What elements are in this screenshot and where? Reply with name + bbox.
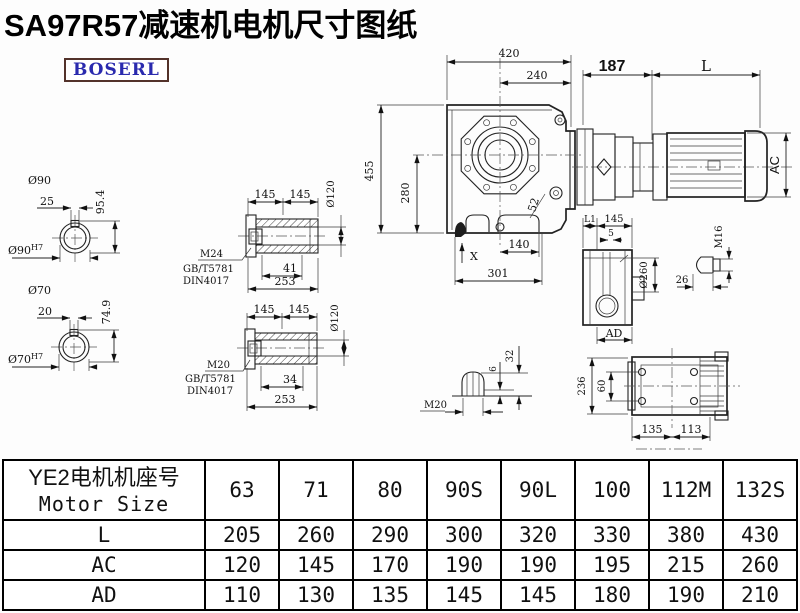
- table-header-row: YE2电机机座号 Motor Size 63 71 80 90S 90L 100…: [3, 460, 797, 520]
- dim-key20: 20: [38, 305, 52, 318]
- dim-dia120-top: Ø120: [326, 180, 337, 207]
- dim-60: 60: [597, 380, 608, 393]
- table-cell: 130: [279, 580, 353, 610]
- table-cell: 210: [723, 580, 797, 610]
- table-cell: 170: [353, 550, 427, 580]
- dim-dia260: Ø260: [639, 261, 650, 288]
- label-x-mark: X: [470, 250, 478, 263]
- dim-135: 135: [642, 423, 663, 436]
- dim-5: 5: [608, 229, 614, 239]
- size-col-header: 100: [575, 460, 649, 520]
- dim-41: 41: [283, 262, 297, 275]
- table-cell: 300: [427, 520, 501, 550]
- table-cell: 135: [353, 580, 427, 610]
- table-cell: 190: [649, 580, 723, 610]
- dim-M16: M16: [714, 226, 725, 249]
- table-cell: 260: [723, 550, 797, 580]
- size-col-header: 132S: [723, 460, 797, 520]
- size-col-header: 80: [353, 460, 427, 520]
- dim-145a: 145: [255, 188, 276, 201]
- gearbox-side-view: L1 145 5 Ø260 AD M16: [583, 214, 733, 344]
- table-cell: 195: [575, 550, 649, 580]
- motor-size-header-cell: YE2电机机座号 Motor Size: [3, 460, 205, 520]
- hollow-shaft-section-m20: 145 145 Ø120 M20 GB/T5781 DIN4017 34 253: [185, 303, 349, 411]
- label-din4017-bottom: DIN4017: [187, 386, 233, 397]
- dim-52: 52: [525, 196, 542, 213]
- dim-L1: L1: [584, 215, 596, 225]
- dim-AC: AC: [767, 156, 782, 174]
- hollow-shaft-section-m24: 145 145 Ø120 M24 GB/T5781 DIN4017 41 253: [183, 180, 346, 293]
- dim-dia90-label: Ø90: [28, 174, 51, 187]
- size-col-header: 63: [205, 460, 279, 520]
- dim-236: 236: [577, 376, 588, 395]
- table-cell: 260: [279, 520, 353, 550]
- dim-dia120-bottom: Ø120: [330, 304, 341, 331]
- label-gbt5781-bottom: GB/T5781: [185, 374, 236, 385]
- table-cell: 330: [575, 520, 649, 550]
- table-row-AC: AC 120 145 170 190 190 195 215 260: [3, 550, 797, 580]
- row-label: AD: [3, 580, 205, 610]
- table-cell: 320: [501, 520, 575, 550]
- table-row-L: L 205 260 290 300 320 330 380 430: [3, 520, 797, 550]
- table-cell: 380: [649, 520, 723, 550]
- row-label: AC: [3, 550, 205, 580]
- table-cell: 145: [427, 580, 501, 610]
- dim-dia70-label: Ø70: [28, 284, 51, 297]
- gearbox-front-view: 420 240 455 280 52 X 140 301: [363, 47, 581, 285]
- table-cell: 290: [353, 520, 427, 550]
- table-cell: 430: [723, 520, 797, 550]
- table-cell: 110: [205, 580, 279, 610]
- shaft-end-view-90: Ø90 25 95.4 Ø90H7: [8, 174, 120, 262]
- size-col-header: 90L: [501, 460, 575, 520]
- table-row-AD: AD 110 130 135 145 145 180 190 210: [3, 580, 797, 610]
- dim-key25: 25: [40, 195, 54, 208]
- dim-113: 113: [681, 423, 702, 436]
- drawing-sheet: SA97R57减速机电机尺寸图纸 BOSERL Ø90 25: [0, 0, 800, 613]
- dim-74-9: 74.9: [100, 300, 113, 325]
- dim-145c: 145: [254, 303, 275, 316]
- table-cell: 190: [427, 550, 501, 580]
- shaft-end-view-70: Ø70 20 74.9 Ø70H7: [8, 284, 119, 371]
- dim-26: 26: [676, 275, 689, 286]
- dim-145b: 145: [290, 188, 311, 201]
- dim-253-top: 253: [275, 275, 296, 288]
- dim-bore70: Ø70H7: [8, 352, 43, 366]
- dim-bore90: Ø90H7: [8, 243, 43, 257]
- motor-size-table: YE2电机机座号 Motor Size 63 71 80 90S 90L 100…: [2, 459, 798, 611]
- table-cell: 205: [205, 520, 279, 550]
- dim-420: 420: [499, 47, 520, 60]
- gearbox-top-view: 236 60 135 113: [577, 348, 740, 449]
- dim-140: 140: [509, 238, 530, 251]
- motor-size-label-cn: YE2电机机座号: [4, 464, 204, 493]
- size-col-header: 71: [279, 460, 353, 520]
- breather-plug-detail: 32 6 M20: [420, 346, 532, 416]
- motor-side-view: 187 L AC: [572, 57, 792, 205]
- label-m20-shaft: M20: [207, 360, 230, 371]
- size-col-header: 90S: [427, 460, 501, 520]
- dim-6: 6: [489, 366, 499, 372]
- motor-size-label-en: Motor Size: [4, 492, 204, 516]
- dim-M20-plug: M20: [424, 400, 447, 411]
- dim-34: 34: [283, 373, 297, 386]
- dim-32: 32: [505, 350, 516, 363]
- dim-145d: 145: [289, 303, 310, 316]
- dim-AD: AD: [605, 327, 623, 340]
- table-cell: 215: [649, 550, 723, 580]
- label-m24: M24: [200, 249, 223, 260]
- dim-301: 301: [488, 267, 509, 280]
- dim-145-side: 145: [604, 214, 623, 225]
- dim-95-4: 95.4: [94, 190, 107, 215]
- table-cell: 145: [501, 580, 575, 610]
- dim-240: 240: [527, 69, 548, 82]
- dim-455: 455: [363, 161, 376, 182]
- technical-drawing: Ø90 25 95.4 Ø90H7 Ø70 20: [0, 0, 800, 458]
- dim-L: L: [701, 57, 711, 75]
- size-col-header: 112M: [649, 460, 723, 520]
- dim-187: 187: [599, 58, 626, 75]
- table-cell: 180: [575, 580, 649, 610]
- label-din4017-top: DIN4017: [183, 276, 229, 287]
- table-cell: 120: [205, 550, 279, 580]
- dim-253-bottom: 253: [275, 393, 296, 406]
- dim-280: 280: [399, 183, 412, 204]
- table-cell: 190: [501, 550, 575, 580]
- row-label: L: [3, 520, 205, 550]
- table-cell: 145: [279, 550, 353, 580]
- label-gbt5781-top: GB/T5781: [183, 264, 234, 275]
